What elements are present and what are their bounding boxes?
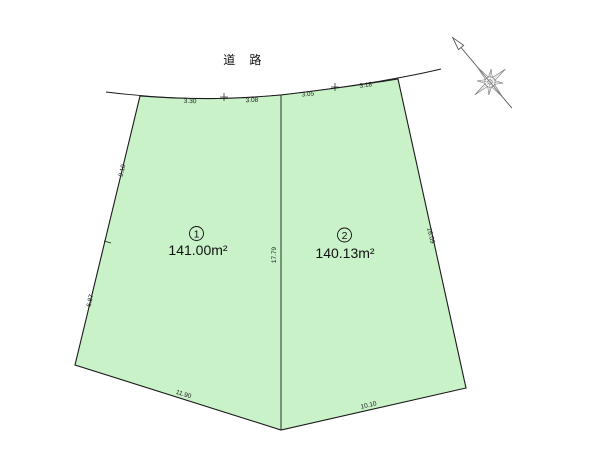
parcel-1-area: 141.00m² <box>168 242 227 258</box>
compass-rose-icon <box>437 25 527 121</box>
dim-top-2: 3.08 <box>246 97 259 104</box>
road-label: 道 路 <box>223 52 267 67</box>
dim-top-1: 3.30 <box>184 98 197 105</box>
lot-plan-drawing: 道 路 3.30 3.08 3.05 3.18 9.10 6.87 17.79 … <box>0 0 600 450</box>
dim-divider: 17.79 <box>271 246 278 263</box>
dim-top-3: 3.05 <box>301 90 315 98</box>
parcel-2-number: 2 <box>342 230 348 242</box>
parcel-2-area: 140.13m² <box>315 245 374 261</box>
parcel-1-number: 1 <box>194 228 200 240</box>
lot-plan-page: 道 路 3.30 3.08 3.05 3.18 9.10 6.87 17.79 … <box>0 0 600 450</box>
